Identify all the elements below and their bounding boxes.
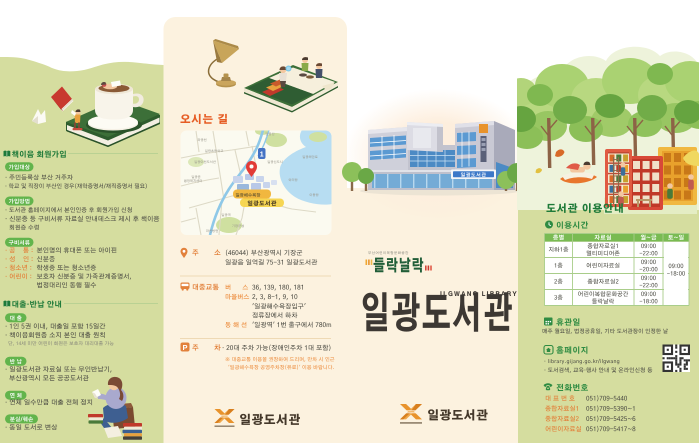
svg-text:1: 1 [260,152,264,159]
svg-text:P: P [182,343,187,352]
